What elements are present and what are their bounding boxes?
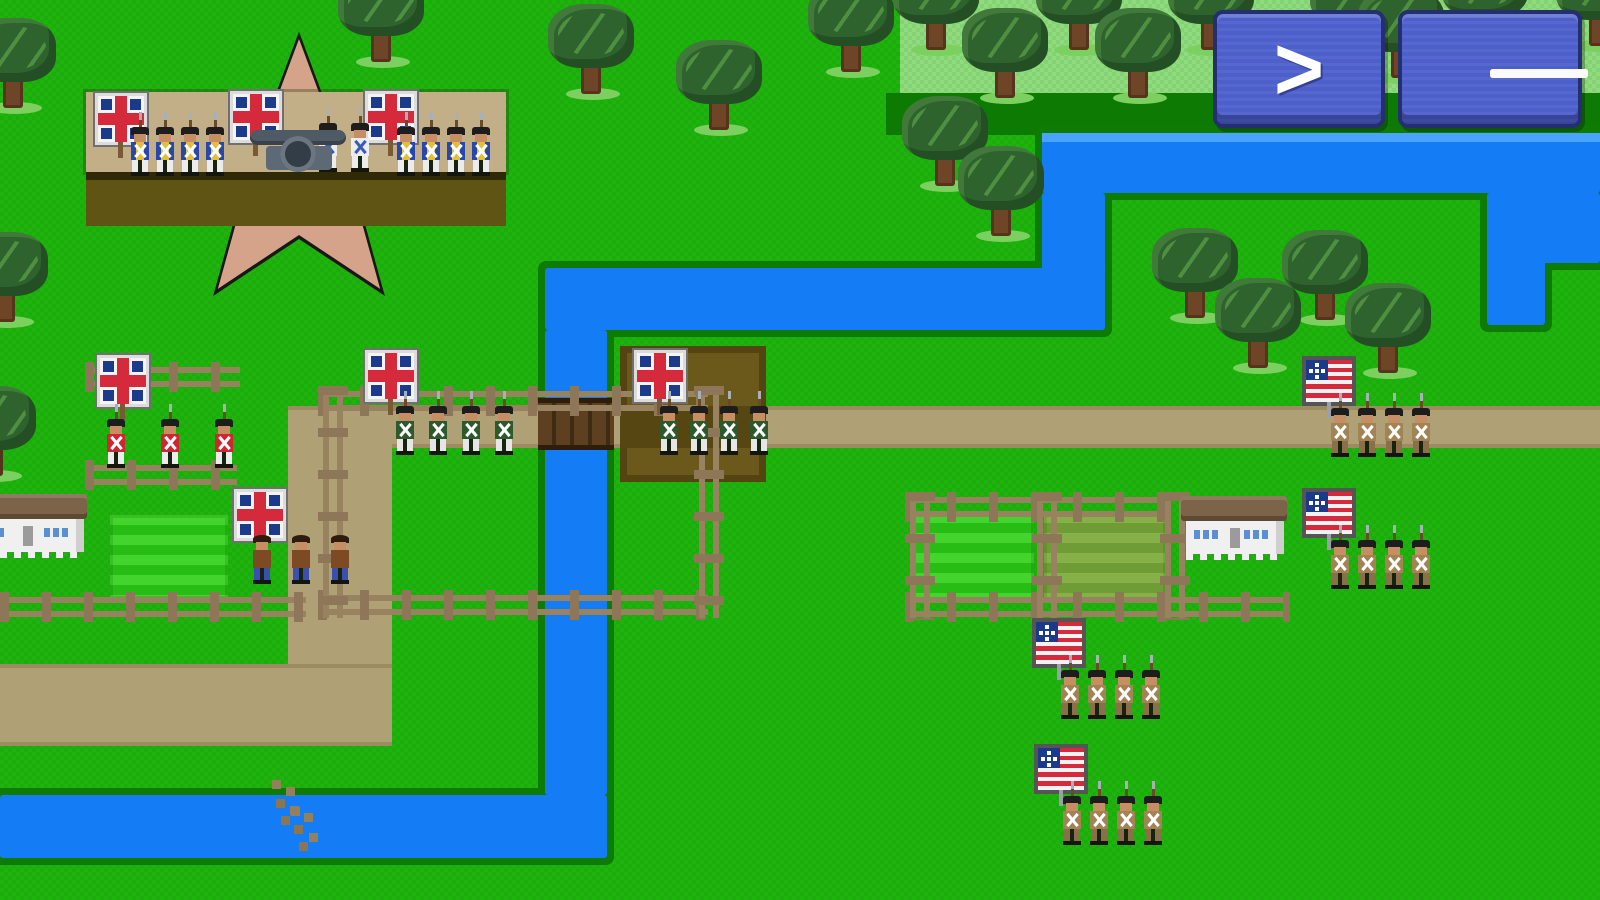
soldier-torso xyxy=(422,142,440,160)
farmhouse-window xyxy=(1244,530,1270,539)
soldier-torso xyxy=(1063,811,1081,829)
soldier-torso xyxy=(1412,423,1430,441)
soldier-legs xyxy=(1116,703,1132,715)
soldier-legs xyxy=(1386,441,1402,453)
soldier-legs xyxy=(496,439,512,451)
tree-canopy xyxy=(1215,278,1301,342)
flag-stripes xyxy=(1328,360,1352,380)
menu-button[interactable] xyxy=(1398,10,1582,128)
unit-us-militia-road[interactable] xyxy=(1306,360,1446,490)
soldier-legs xyxy=(691,439,707,451)
soldier-feet xyxy=(215,464,233,468)
soldier-torso xyxy=(351,138,369,156)
game-map[interactable]: > xyxy=(0,0,1600,900)
soldier xyxy=(1112,655,1136,719)
soldier-legs xyxy=(448,160,464,172)
soldier-legs xyxy=(1062,703,1078,715)
soldier-feet xyxy=(472,172,490,176)
soldier-legs xyxy=(1089,703,1105,715)
soldier-torso xyxy=(1358,423,1376,441)
soldier-feet xyxy=(429,451,447,455)
soldier-torso xyxy=(161,434,179,452)
unit-british-light-west[interactable] xyxy=(368,353,535,483)
flag-corner xyxy=(640,356,651,367)
soldier-torso xyxy=(429,421,447,439)
soldier xyxy=(717,391,741,455)
soldier-feet xyxy=(161,464,179,468)
soldier-feet xyxy=(1385,585,1403,589)
soldier-feet xyxy=(351,168,369,172)
soldier-feet xyxy=(331,580,349,584)
river-segment xyxy=(1540,193,1600,263)
soldier xyxy=(419,112,443,176)
soldier-feet xyxy=(1090,841,1108,845)
soldier-feet xyxy=(447,172,465,176)
soldier-legs xyxy=(1332,573,1348,585)
soldier xyxy=(1355,525,1379,589)
flag-corner xyxy=(103,361,114,372)
soldier-feet xyxy=(397,172,415,176)
tree-canopy xyxy=(808,0,894,46)
ford-marks xyxy=(272,780,281,789)
flag-canton xyxy=(1038,748,1060,768)
soldier-feet xyxy=(131,172,149,176)
soldier-legs xyxy=(430,439,446,451)
soldier-torso xyxy=(495,421,513,439)
tree xyxy=(338,0,424,68)
unit-british-redcoats[interactable] xyxy=(100,358,276,488)
soldier-legs xyxy=(1413,573,1429,585)
soldier-feet xyxy=(1412,585,1430,589)
soldier xyxy=(1087,781,1111,845)
soldier xyxy=(444,112,468,176)
river-highlight xyxy=(1042,133,1600,142)
tree-canopy xyxy=(958,146,1044,210)
road-segment xyxy=(0,664,392,746)
soldier xyxy=(1328,393,1352,457)
soldier-legs xyxy=(1118,829,1134,841)
soldier-legs xyxy=(1359,441,1375,453)
soldier-torso xyxy=(1061,685,1079,703)
soldier xyxy=(128,112,152,176)
soldier-legs xyxy=(1332,441,1348,453)
flag-corner xyxy=(371,126,382,137)
soldier-legs xyxy=(207,160,223,172)
soldier-legs xyxy=(751,439,767,451)
soldier-torso xyxy=(660,421,678,439)
soldier-torso xyxy=(750,421,768,439)
soldier xyxy=(1058,655,1082,719)
flag-corner xyxy=(130,99,141,110)
flag-canton xyxy=(1306,360,1328,380)
flag-stripes xyxy=(1328,492,1352,512)
soldier-torso xyxy=(1331,555,1349,573)
soldier xyxy=(1355,393,1379,457)
flag-cross xyxy=(100,375,146,387)
flag-corner xyxy=(400,356,411,367)
flag-corner xyxy=(265,97,276,108)
soldier-torso xyxy=(1385,555,1403,573)
flag-canton xyxy=(1036,622,1058,642)
soldier-torso xyxy=(156,142,174,160)
tree-canopy xyxy=(338,0,424,36)
soldier xyxy=(426,391,450,455)
cannon-wheel xyxy=(280,136,316,172)
flag-corner xyxy=(269,495,280,506)
farmhouse-window xyxy=(1194,530,1220,539)
soldier-feet xyxy=(206,172,224,176)
flag-corner xyxy=(669,356,680,367)
soldier-legs xyxy=(162,452,178,464)
soldier-legs xyxy=(157,160,173,172)
tree xyxy=(1215,278,1301,374)
soldier-legs xyxy=(423,160,439,172)
ford-marks xyxy=(290,806,299,815)
tree-canopy xyxy=(0,232,48,296)
soldier-legs xyxy=(132,160,148,172)
soldier-torso xyxy=(215,434,233,452)
soldier-feet xyxy=(495,451,513,455)
soldier-legs xyxy=(108,452,124,464)
tree xyxy=(0,18,56,114)
farmhouse-window xyxy=(44,528,70,537)
soldier xyxy=(348,108,372,172)
soldier-torso xyxy=(181,142,199,160)
river-segment xyxy=(1487,193,1545,325)
farmhouse-roof xyxy=(0,494,87,519)
soldier-legs xyxy=(397,439,413,451)
soldier xyxy=(1141,781,1165,845)
soldier-torso xyxy=(107,434,125,452)
unit-us-militia-south[interactable] xyxy=(1038,748,1178,878)
farmhouse-roof xyxy=(1181,496,1287,521)
flag-corner xyxy=(101,128,112,139)
soldier-legs xyxy=(463,439,479,451)
flag-canton xyxy=(1306,492,1328,512)
soldier-feet xyxy=(750,451,768,455)
soldier xyxy=(1328,525,1352,589)
soldier-torso xyxy=(397,142,415,160)
soldier-feet xyxy=(462,451,480,455)
soldier-torso xyxy=(1088,685,1106,703)
unit-us-militia-field[interactable] xyxy=(1036,622,1176,752)
flag-corner xyxy=(132,390,143,401)
soldier xyxy=(203,112,227,176)
soldier xyxy=(289,520,313,584)
farmhouse xyxy=(1186,500,1284,554)
farmhouse-base xyxy=(1186,554,1284,560)
soldier-feet xyxy=(396,451,414,455)
soldier-feet xyxy=(1061,715,1079,719)
soldier-feet xyxy=(156,172,174,176)
soldier-torso xyxy=(253,550,271,568)
tree xyxy=(676,40,762,136)
soldier-feet xyxy=(1331,585,1349,589)
soldier-legs xyxy=(1359,573,1375,585)
tree-canopy xyxy=(548,4,634,68)
soldier-feet xyxy=(1358,585,1376,589)
farmhouse-base xyxy=(0,552,84,558)
soldier-legs xyxy=(293,568,309,580)
soldier-torso xyxy=(462,421,480,439)
soldier-legs xyxy=(352,156,368,168)
soldier xyxy=(1139,655,1163,719)
soldier-legs xyxy=(661,439,677,451)
farm-field xyxy=(1044,513,1166,601)
soldier xyxy=(328,520,352,584)
soldier-torso xyxy=(720,421,738,439)
soldier-legs xyxy=(254,568,270,580)
soldier-legs xyxy=(473,160,489,172)
soldier-feet xyxy=(422,172,440,176)
chevron-right-icon: > xyxy=(1274,24,1324,114)
soldier-feet xyxy=(1358,453,1376,457)
soldier-legs xyxy=(1413,441,1429,453)
soldier xyxy=(104,404,128,468)
tree-canopy xyxy=(0,386,36,450)
soldier-torso xyxy=(206,142,224,160)
soldier xyxy=(469,112,493,176)
flag-corner xyxy=(240,495,251,506)
soldier-torso xyxy=(472,142,490,160)
soldier-torso xyxy=(1090,811,1108,829)
soldier xyxy=(158,404,182,468)
soldier-legs xyxy=(1064,829,1080,841)
soldier-legs xyxy=(1145,829,1161,841)
soldier-feet xyxy=(292,580,310,584)
tree xyxy=(958,146,1044,242)
soldier xyxy=(178,112,202,176)
soldier xyxy=(1382,393,1406,457)
soldier-feet xyxy=(1412,453,1430,457)
soldier-legs xyxy=(1091,829,1107,841)
tree xyxy=(0,232,48,328)
flag-corner xyxy=(371,97,382,108)
soldier-torso xyxy=(1142,685,1160,703)
soldier-feet xyxy=(660,451,678,455)
soldier-torso xyxy=(1331,423,1349,441)
soldier-torso xyxy=(331,550,349,568)
soldier xyxy=(492,391,516,455)
farmhouse-door xyxy=(23,526,33,546)
soldier-torso xyxy=(1115,685,1133,703)
soldier xyxy=(212,404,236,468)
soldier xyxy=(687,391,711,455)
unit-british-light-entrenched[interactable] xyxy=(637,353,787,483)
tree-canopy xyxy=(676,40,762,104)
soldier xyxy=(747,391,771,455)
british-flag xyxy=(100,358,146,404)
tree xyxy=(0,386,36,482)
soldier xyxy=(250,520,274,584)
soldier-feet xyxy=(107,464,125,468)
soldier xyxy=(657,391,681,455)
flag-corner xyxy=(103,390,114,401)
soldier-legs xyxy=(216,452,232,464)
unit-us-militia-farm[interactable] xyxy=(1306,492,1446,622)
tree xyxy=(808,0,894,78)
soldier-torso xyxy=(690,421,708,439)
soldier xyxy=(1085,655,1109,719)
soldier-feet xyxy=(1115,715,1133,719)
flag-corner xyxy=(101,99,112,110)
fence xyxy=(1032,492,1062,620)
soldier-torso xyxy=(292,550,310,568)
tree xyxy=(548,4,634,100)
fence xyxy=(905,492,935,620)
flag-stripes xyxy=(1058,622,1082,642)
soldier xyxy=(394,112,418,176)
farm-field xyxy=(110,515,228,599)
flag-cross xyxy=(368,370,414,382)
soldier-legs xyxy=(1386,573,1402,585)
soldier-feet xyxy=(1063,841,1081,845)
soldier-feet xyxy=(1088,715,1106,719)
river-segment xyxy=(545,268,1105,330)
soldier xyxy=(1382,525,1406,589)
tree-shadow xyxy=(0,470,22,482)
soldier-legs xyxy=(721,439,737,451)
farmhouse-window xyxy=(0,528,6,537)
soldier-torso xyxy=(1117,811,1135,829)
farmhouse xyxy=(0,498,84,552)
river-segment xyxy=(1042,133,1600,193)
flag-stripes xyxy=(1060,748,1084,768)
flag-cross xyxy=(637,370,683,382)
soldier-feet xyxy=(1385,453,1403,457)
soldier xyxy=(1114,781,1138,845)
flag-corner xyxy=(236,97,247,108)
soldier-torso xyxy=(447,142,465,160)
flag-corner xyxy=(371,385,382,396)
soldier-feet xyxy=(1117,841,1135,845)
soldier-legs xyxy=(398,160,414,172)
soldier-torso xyxy=(1144,811,1162,829)
soldier-feet xyxy=(253,580,271,584)
tree-canopy xyxy=(1345,283,1431,347)
unit-british-native-allies[interactable] xyxy=(237,492,377,622)
cannon xyxy=(250,124,350,174)
soldier-legs xyxy=(332,568,348,580)
river-segment xyxy=(0,795,607,858)
soldier xyxy=(459,391,483,455)
soldier-torso xyxy=(396,421,414,439)
flag-corner xyxy=(640,385,651,396)
soldier xyxy=(1060,781,1084,845)
tree-canopy xyxy=(0,18,56,82)
flag-corner xyxy=(400,97,411,108)
soldier-feet xyxy=(1144,841,1162,845)
soldier-feet xyxy=(690,451,708,455)
soldier-torso xyxy=(1385,423,1403,441)
soldier xyxy=(393,391,417,455)
soldier-torso xyxy=(131,142,149,160)
soldier-feet xyxy=(720,451,738,455)
farmhouse-door xyxy=(1230,528,1240,548)
flag-corner xyxy=(236,126,247,137)
fence xyxy=(905,592,1290,622)
end-turn-button[interactable]: > xyxy=(1213,10,1385,128)
soldier xyxy=(1409,393,1433,457)
soldier xyxy=(153,112,177,176)
soldier-feet xyxy=(1142,715,1160,719)
soldier-torso xyxy=(1358,555,1376,573)
flag-cross xyxy=(233,111,279,123)
soldier-torso xyxy=(1412,555,1430,573)
soldier-legs xyxy=(182,160,198,172)
flag-corner xyxy=(371,356,382,367)
soldier-feet xyxy=(1331,453,1349,457)
soldier xyxy=(1409,525,1433,589)
flag-corner xyxy=(132,361,143,372)
soldier-feet xyxy=(181,172,199,176)
fort-rampart xyxy=(86,180,506,226)
soldier-legs xyxy=(1143,703,1159,715)
